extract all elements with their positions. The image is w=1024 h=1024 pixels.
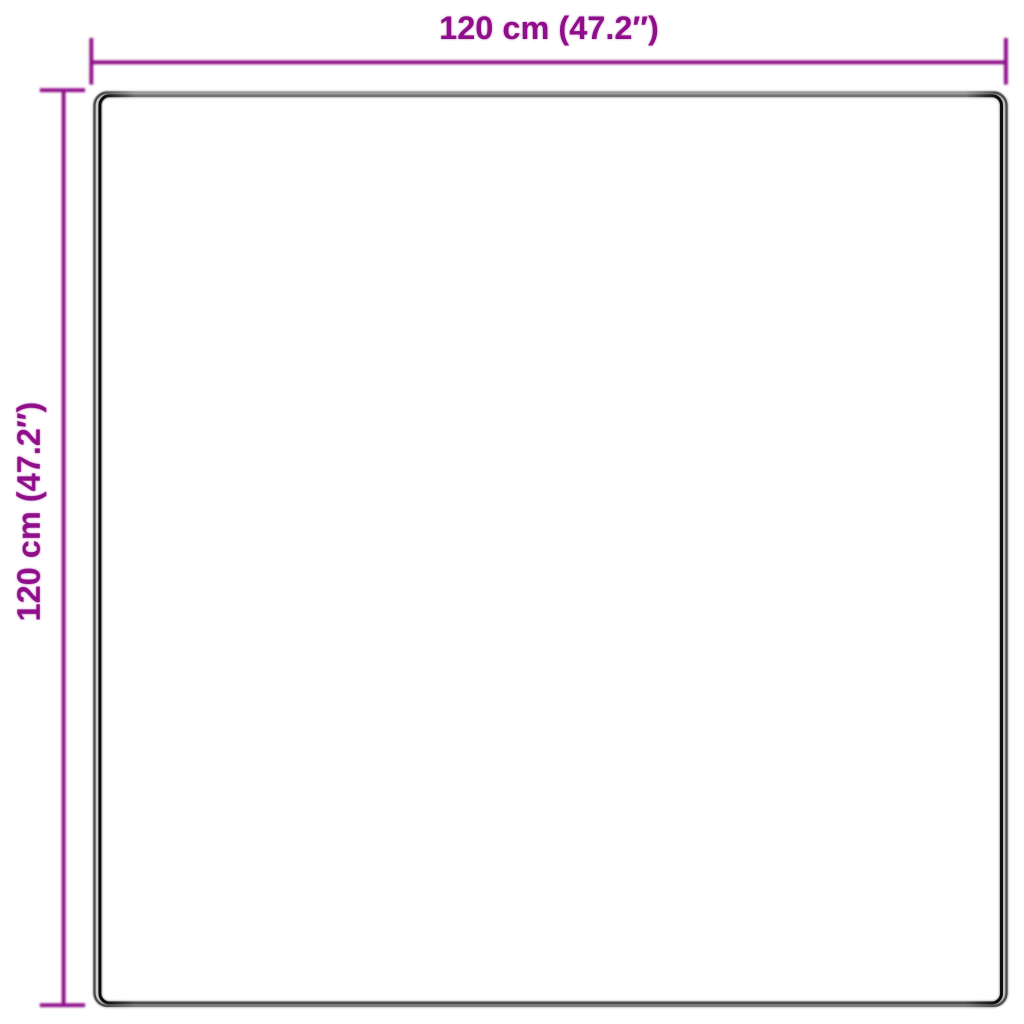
svg-text:120 cm (47.2″): 120 cm (47.2″)	[439, 10, 659, 46]
svg-text:120 cm (47.2″): 120 cm (47.2″)	[11, 402, 47, 622]
